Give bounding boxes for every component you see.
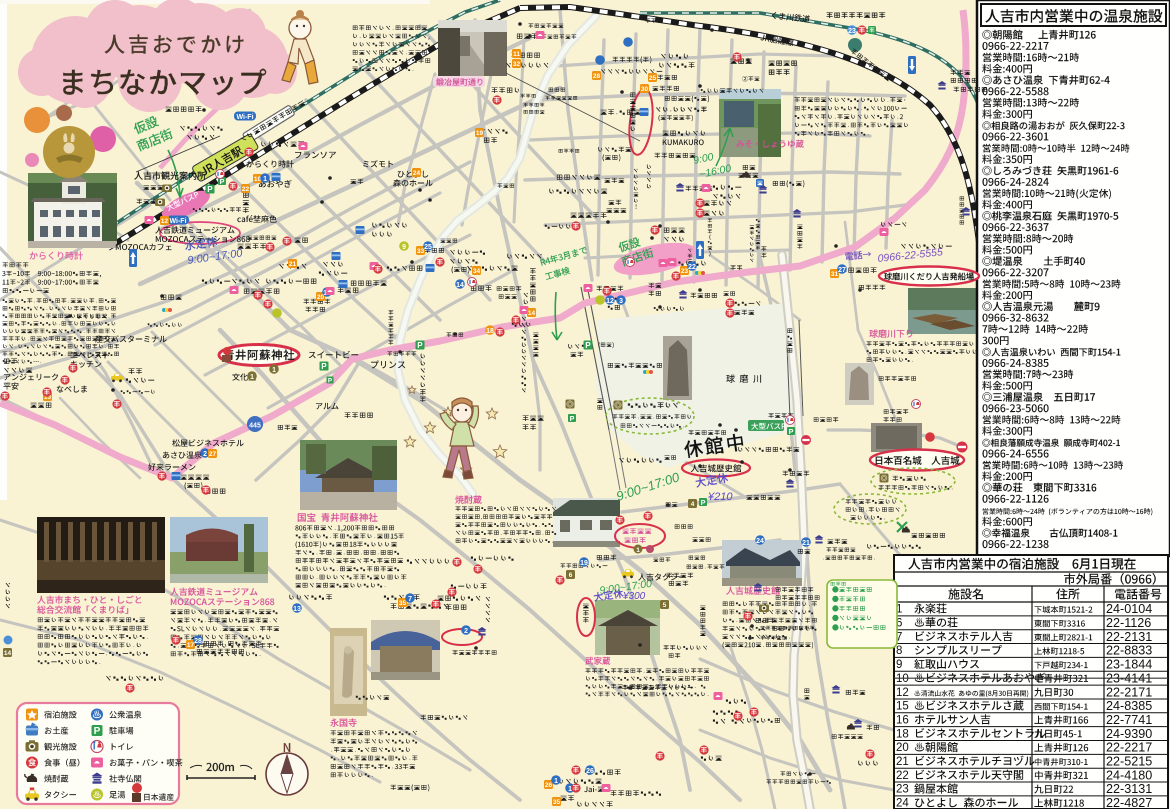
- svg-text:25: 25: [424, 244, 432, 251]
- svg-text:22: 22: [688, 264, 696, 271]
- svg-text:19: 19: [476, 130, 484, 137]
- svg-text:23: 23: [848, 28, 856, 35]
- svg-text:9: 9: [896, 659, 902, 671]
- svg-text:P: P: [328, 378, 332, 385]
- svg-text:1: 1: [250, 374, 254, 381]
- svg-text:24: 24: [756, 538, 764, 545]
- svg-text:20: 20: [896, 742, 909, 754]
- svg-text:12: 12: [161, 218, 169, 225]
- svg-text:P: P: [701, 498, 706, 507]
- svg-text:22-5215: 22-5215: [1106, 755, 1152, 769]
- svg-text:22: 22: [242, 186, 250, 193]
- svg-text:5: 5: [663, 602, 667, 609]
- svg-text:22-7741: 22-7741: [1106, 713, 1152, 727]
- svg-text:35: 35: [553, 799, 561, 806]
- svg-text:30: 30: [641, 86, 649, 93]
- svg-text:P: P: [789, 427, 794, 436]
- svg-text:22-2171: 22-2171: [1106, 685, 1152, 699]
- svg-text:¥300: ¥300: [623, 591, 646, 602]
- svg-text:10: 10: [896, 673, 909, 685]
- svg-text:12: 12: [896, 687, 909, 699]
- svg-text:34: 34: [473, 268, 481, 275]
- svg-text:8: 8: [896, 645, 902, 657]
- svg-text:25: 25: [649, 75, 657, 82]
- svg-text:27: 27: [209, 451, 217, 458]
- svg-text:1: 1: [568, 786, 572, 793]
- svg-text:26: 26: [545, 782, 553, 789]
- svg-text:P: P: [207, 185, 213, 194]
- svg-text:4: 4: [691, 501, 695, 508]
- svg-text:1: 1: [636, 547, 640, 554]
- svg-text:22-2131: 22-2131: [1106, 630, 1152, 644]
- svg-text:14: 14: [4, 650, 12, 657]
- svg-text:24-4180: 24-4180: [1106, 768, 1152, 782]
- svg-text:P: P: [94, 726, 101, 737]
- svg-text:1: 1: [554, 778, 558, 785]
- svg-text:445: 445: [249, 423, 261, 430]
- svg-text:Wi-Fi: Wi-Fi: [169, 218, 186, 225]
- svg-text:6: 6: [569, 572, 573, 579]
- svg-text:22-8833: 22-8833: [1106, 644, 1152, 658]
- svg-text:24: 24: [413, 170, 421, 177]
- svg-text:P: P: [417, 341, 423, 350]
- svg-text:35: 35: [399, 600, 407, 607]
- svg-text:18: 18: [896, 728, 909, 740]
- svg-text:13: 13: [293, 606, 301, 613]
- svg-text:16: 16: [896, 714, 909, 726]
- svg-text:24-9390: 24-9390: [1106, 727, 1152, 741]
- svg-text:23: 23: [896, 784, 909, 796]
- svg-text:2: 2: [203, 451, 207, 458]
- svg-text:14: 14: [456, 282, 464, 289]
- svg-text:9: 9: [402, 244, 406, 251]
- svg-text:¥210: ¥210: [708, 491, 733, 503]
- svg-text:26: 26: [586, 768, 594, 775]
- svg-text:15: 15: [896, 701, 909, 713]
- svg-text:22-2217: 22-2217: [1106, 741, 1152, 755]
- svg-text:2: 2: [464, 628, 468, 635]
- svg-text:P: P: [321, 362, 327, 371]
- svg-text:28: 28: [593, 73, 601, 80]
- svg-text:18: 18: [486, 328, 494, 335]
- svg-text:1: 1: [263, 176, 267, 183]
- svg-text:Wi-Fi: Wi-Fi: [236, 114, 253, 121]
- svg-text:22-3131: 22-3131: [1106, 782, 1152, 796]
- svg-text:24-8385: 24-8385: [1106, 699, 1152, 713]
- svg-text:22-4827: 22-4827: [1106, 796, 1152, 809]
- svg-text:7: 7: [408, 596, 412, 603]
- svg-text:12: 12: [606, 298, 614, 305]
- svg-text:1: 1: [272, 367, 276, 374]
- svg-text:28: 28: [194, 638, 202, 645]
- svg-text:27: 27: [838, 267, 846, 274]
- svg-text:21: 21: [896, 756, 909, 768]
- svg-text:22-1126: 22-1126: [1106, 616, 1151, 630]
- svg-text:21: 21: [802, 540, 810, 547]
- svg-text:22: 22: [896, 770, 909, 782]
- svg-text:32: 32: [513, 61, 521, 68]
- svg-text:23-1844: 23-1844: [1106, 658, 1152, 672]
- svg-text:P: P: [570, 414, 575, 423]
- svg-text:21: 21: [289, 261, 297, 268]
- svg-text:19: 19: [580, 560, 588, 567]
- svg-text:11: 11: [513, 51, 520, 58]
- svg-text:P: P: [585, 341, 591, 350]
- svg-text:24-0104: 24-0104: [1106, 602, 1152, 616]
- svg-text:24: 24: [896, 798, 909, 809]
- svg-text:14: 14: [528, 310, 536, 317]
- svg-text:3: 3: [619, 298, 623, 305]
